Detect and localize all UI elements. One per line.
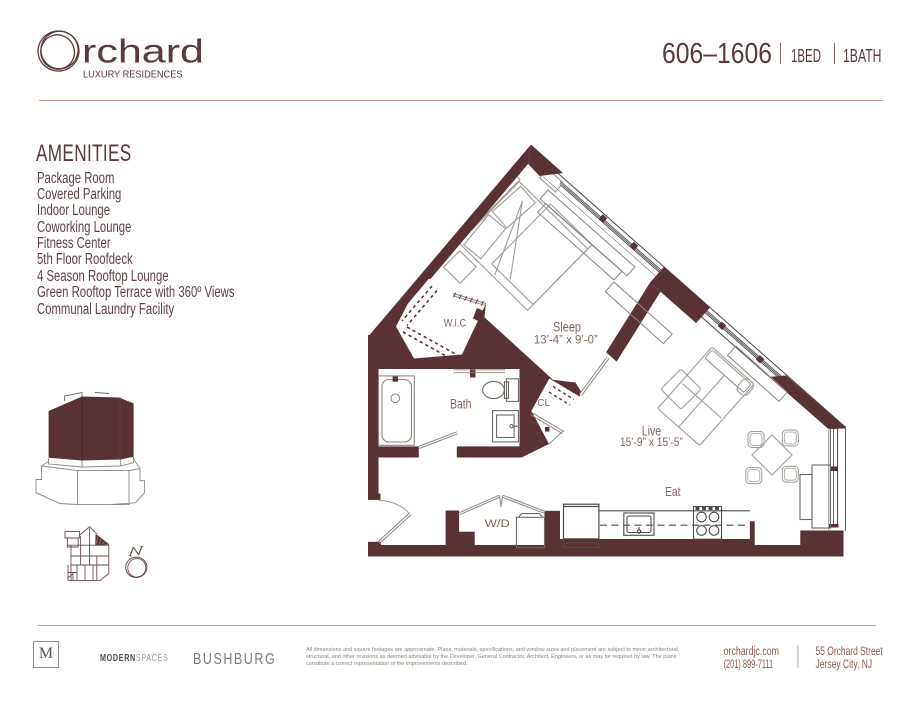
svg-text:W/D: W/D <box>485 518 510 530</box>
svg-text:Jersey City, NJ: Jersey City, NJ <box>816 659 873 671</box>
svg-text:(201) 899-7111: (201) 899-7111 <box>724 659 774 671</box>
svg-text:55 Orchard Street: 55 Orchard Street <box>816 646 884 658</box>
svg-text:Bath: Bath <box>450 397 472 412</box>
svg-text:W.I.C: W.I.C <box>444 318 467 330</box>
svg-text:15’-9” x 15’-5”: 15’-9” x 15’-5” <box>620 435 683 449</box>
svg-text:orchardjc.com: orchardjc.com <box>724 646 779 658</box>
svg-text:CL: CL <box>537 397 550 409</box>
svg-text:Eat: Eat <box>665 484 681 499</box>
svg-text:13’-4” x 9’-0”: 13’-4” x 9’-0” <box>534 333 598 347</box>
